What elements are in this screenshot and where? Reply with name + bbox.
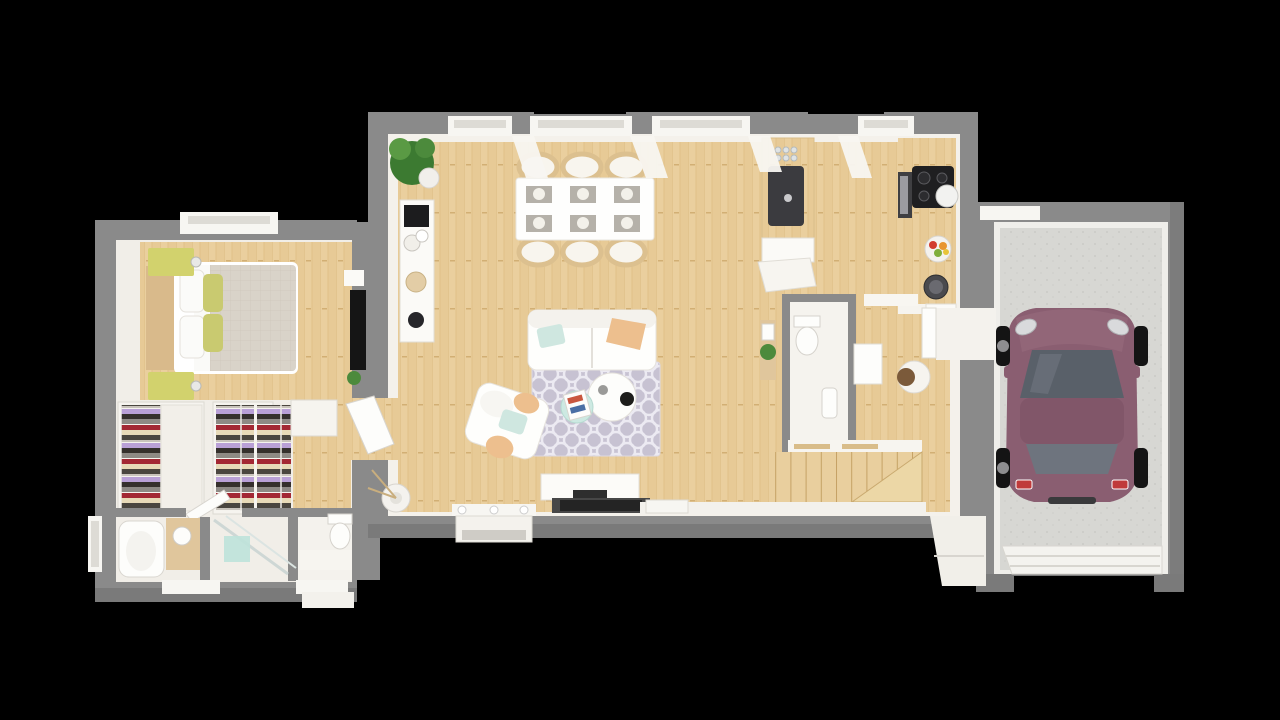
fruit-yellow xyxy=(943,249,949,255)
trash-can-lid xyxy=(929,280,943,294)
garage-passage xyxy=(936,308,996,360)
floor-plan-stage xyxy=(0,0,1280,720)
hall-shelf-plant xyxy=(760,344,776,360)
pillow-green-top xyxy=(203,274,223,312)
floor-plan-canvas xyxy=(0,0,1280,720)
living-window-glass-2 xyxy=(538,120,624,128)
shower-glass-teal xyxy=(224,536,250,562)
nightstand-lamp-bottom xyxy=(191,381,201,391)
car-taillight-left xyxy=(1016,480,1032,489)
bath-window-left-glass xyxy=(91,521,99,567)
living-window-opening-1 xyxy=(534,100,626,114)
pillow-green-bottom xyxy=(203,314,223,352)
hall-shelf-books xyxy=(762,324,774,340)
burner-1 xyxy=(918,172,930,184)
back-door-sill xyxy=(646,500,688,513)
wardrobe-1-clothes xyxy=(121,405,161,511)
garage-passage-door xyxy=(922,308,936,358)
wc1-toilet-bowl xyxy=(330,523,350,549)
island-end-unit xyxy=(758,258,816,292)
nightstand-lamp-top xyxy=(191,257,201,267)
living-plant-pot xyxy=(419,168,439,188)
bed-headboard xyxy=(146,266,176,370)
garage-door-opening xyxy=(1014,576,1154,592)
bedroom-tv xyxy=(350,290,366,370)
bath-window-bottom xyxy=(162,580,220,594)
wc2-toilet-bowl xyxy=(796,327,818,355)
living-window-opening-2 xyxy=(808,100,884,114)
wc2-toilet-tank xyxy=(794,316,820,327)
bedroom-plant xyxy=(347,371,361,385)
pillow-white-bottom xyxy=(180,316,204,358)
bathtub-basin xyxy=(126,531,156,571)
car-wheel-front-right xyxy=(1134,326,1148,366)
wc1-window-bottom xyxy=(296,580,348,594)
wardrobe-3-clothes xyxy=(257,405,291,509)
living-window-glass-3 xyxy=(660,120,742,128)
plate-4 xyxy=(533,217,545,229)
wc1-step xyxy=(300,550,352,570)
plate-3 xyxy=(621,188,633,200)
kitchen-window-glass xyxy=(864,120,908,128)
bath-divider-wall xyxy=(200,517,210,581)
plate-1 xyxy=(533,188,545,200)
garage-door xyxy=(1002,546,1162,574)
coffee-table-decor-bowl xyxy=(598,385,608,395)
entry-chair-seat xyxy=(897,368,915,386)
entry-wall-shelf xyxy=(864,294,918,306)
island-glass-3 xyxy=(791,147,797,153)
living-window-glass-1 xyxy=(454,120,506,128)
coffee-table-decor-dark xyxy=(620,392,634,406)
window-handle-3 xyxy=(520,506,528,514)
fruit-red xyxy=(929,241,937,249)
sideboard-art xyxy=(404,205,429,227)
entry-table xyxy=(854,344,882,384)
entry-walkway xyxy=(930,516,986,586)
window-handle-1 xyxy=(458,506,466,514)
bath-wall-top-left xyxy=(116,508,186,517)
window-handle-2 xyxy=(490,506,498,514)
cooking-pot xyxy=(936,185,958,207)
wc1-bay-box xyxy=(302,592,354,608)
dining-chair-5 xyxy=(563,239,601,265)
plate-6 xyxy=(621,217,633,229)
pillow-white-top xyxy=(180,270,204,312)
fruit-green xyxy=(934,249,942,257)
living-plant-foliage-3 xyxy=(415,138,435,158)
car-hub-rear xyxy=(997,462,1009,474)
dining-chair-4 xyxy=(519,239,557,265)
tv-screen xyxy=(560,500,642,511)
car-wheel-rear-right xyxy=(1134,448,1148,488)
living-plant-foliage-2 xyxy=(389,138,411,160)
car-roof xyxy=(1020,398,1124,444)
bedroom-tv-shelf xyxy=(344,270,364,286)
wall-oven-front xyxy=(900,176,908,214)
dining-chair-6 xyxy=(607,239,645,265)
wc2-sink xyxy=(822,388,837,418)
stairs-landing-trim-1 xyxy=(794,444,830,449)
island-glass-5 xyxy=(783,155,789,161)
nightstand-top xyxy=(148,248,194,276)
car-hub-front xyxy=(997,340,1009,352)
car-rear-window xyxy=(1026,444,1118,474)
burner-3 xyxy=(919,191,929,201)
island-faucet xyxy=(784,194,792,202)
bath-sink xyxy=(173,527,191,545)
scene-root xyxy=(88,100,1184,608)
island-glass-2 xyxy=(783,147,789,153)
sideboard-decor xyxy=(408,312,424,328)
car-rear-bumper xyxy=(1048,497,1096,504)
sideboard-vase xyxy=(406,272,426,292)
bay-window-sill xyxy=(462,530,526,540)
burner-2 xyxy=(937,173,947,183)
bedroom-window-glass xyxy=(188,216,270,224)
sideboard-bowl-2 xyxy=(416,230,428,242)
car-mirror-right xyxy=(1128,366,1140,378)
plate-5 xyxy=(577,217,589,229)
garage-side-door-sill xyxy=(980,206,1040,220)
car-mirror-left xyxy=(1004,366,1016,378)
wc1-divider-wall xyxy=(288,517,298,581)
nightstand-bottom xyxy=(148,372,194,400)
island-glass-1 xyxy=(775,147,781,153)
plate-2 xyxy=(577,188,589,200)
garage-right-wall-shade xyxy=(1170,202,1184,592)
dressing-corner-cabinet xyxy=(291,400,337,436)
stairs-landing-trim-2 xyxy=(842,444,878,449)
wardrobe-1-door xyxy=(161,405,202,511)
car-taillight-right xyxy=(1112,480,1128,489)
dining-chair-2 xyxy=(563,154,601,180)
fruit-orange xyxy=(939,242,947,250)
island-glass-6 xyxy=(791,155,797,161)
